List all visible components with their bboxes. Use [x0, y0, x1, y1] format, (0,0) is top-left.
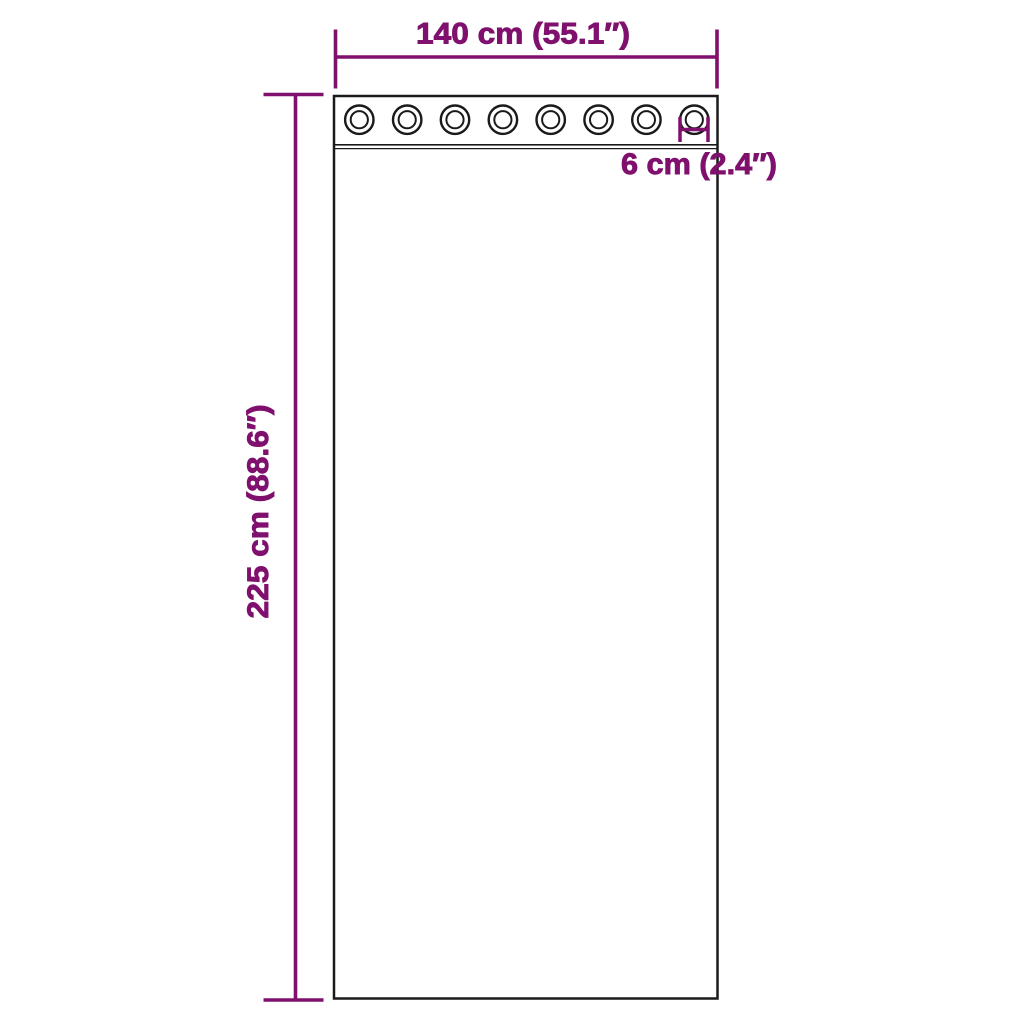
svg-text:140 cm (55.1″): 140 cm (55.1″): [416, 18, 630, 51]
svg-text:6 cm (2.4″): 6 cm (2.4″): [621, 148, 777, 181]
svg-text:225 cm (88.6″): 225 cm (88.6″): [242, 405, 275, 619]
